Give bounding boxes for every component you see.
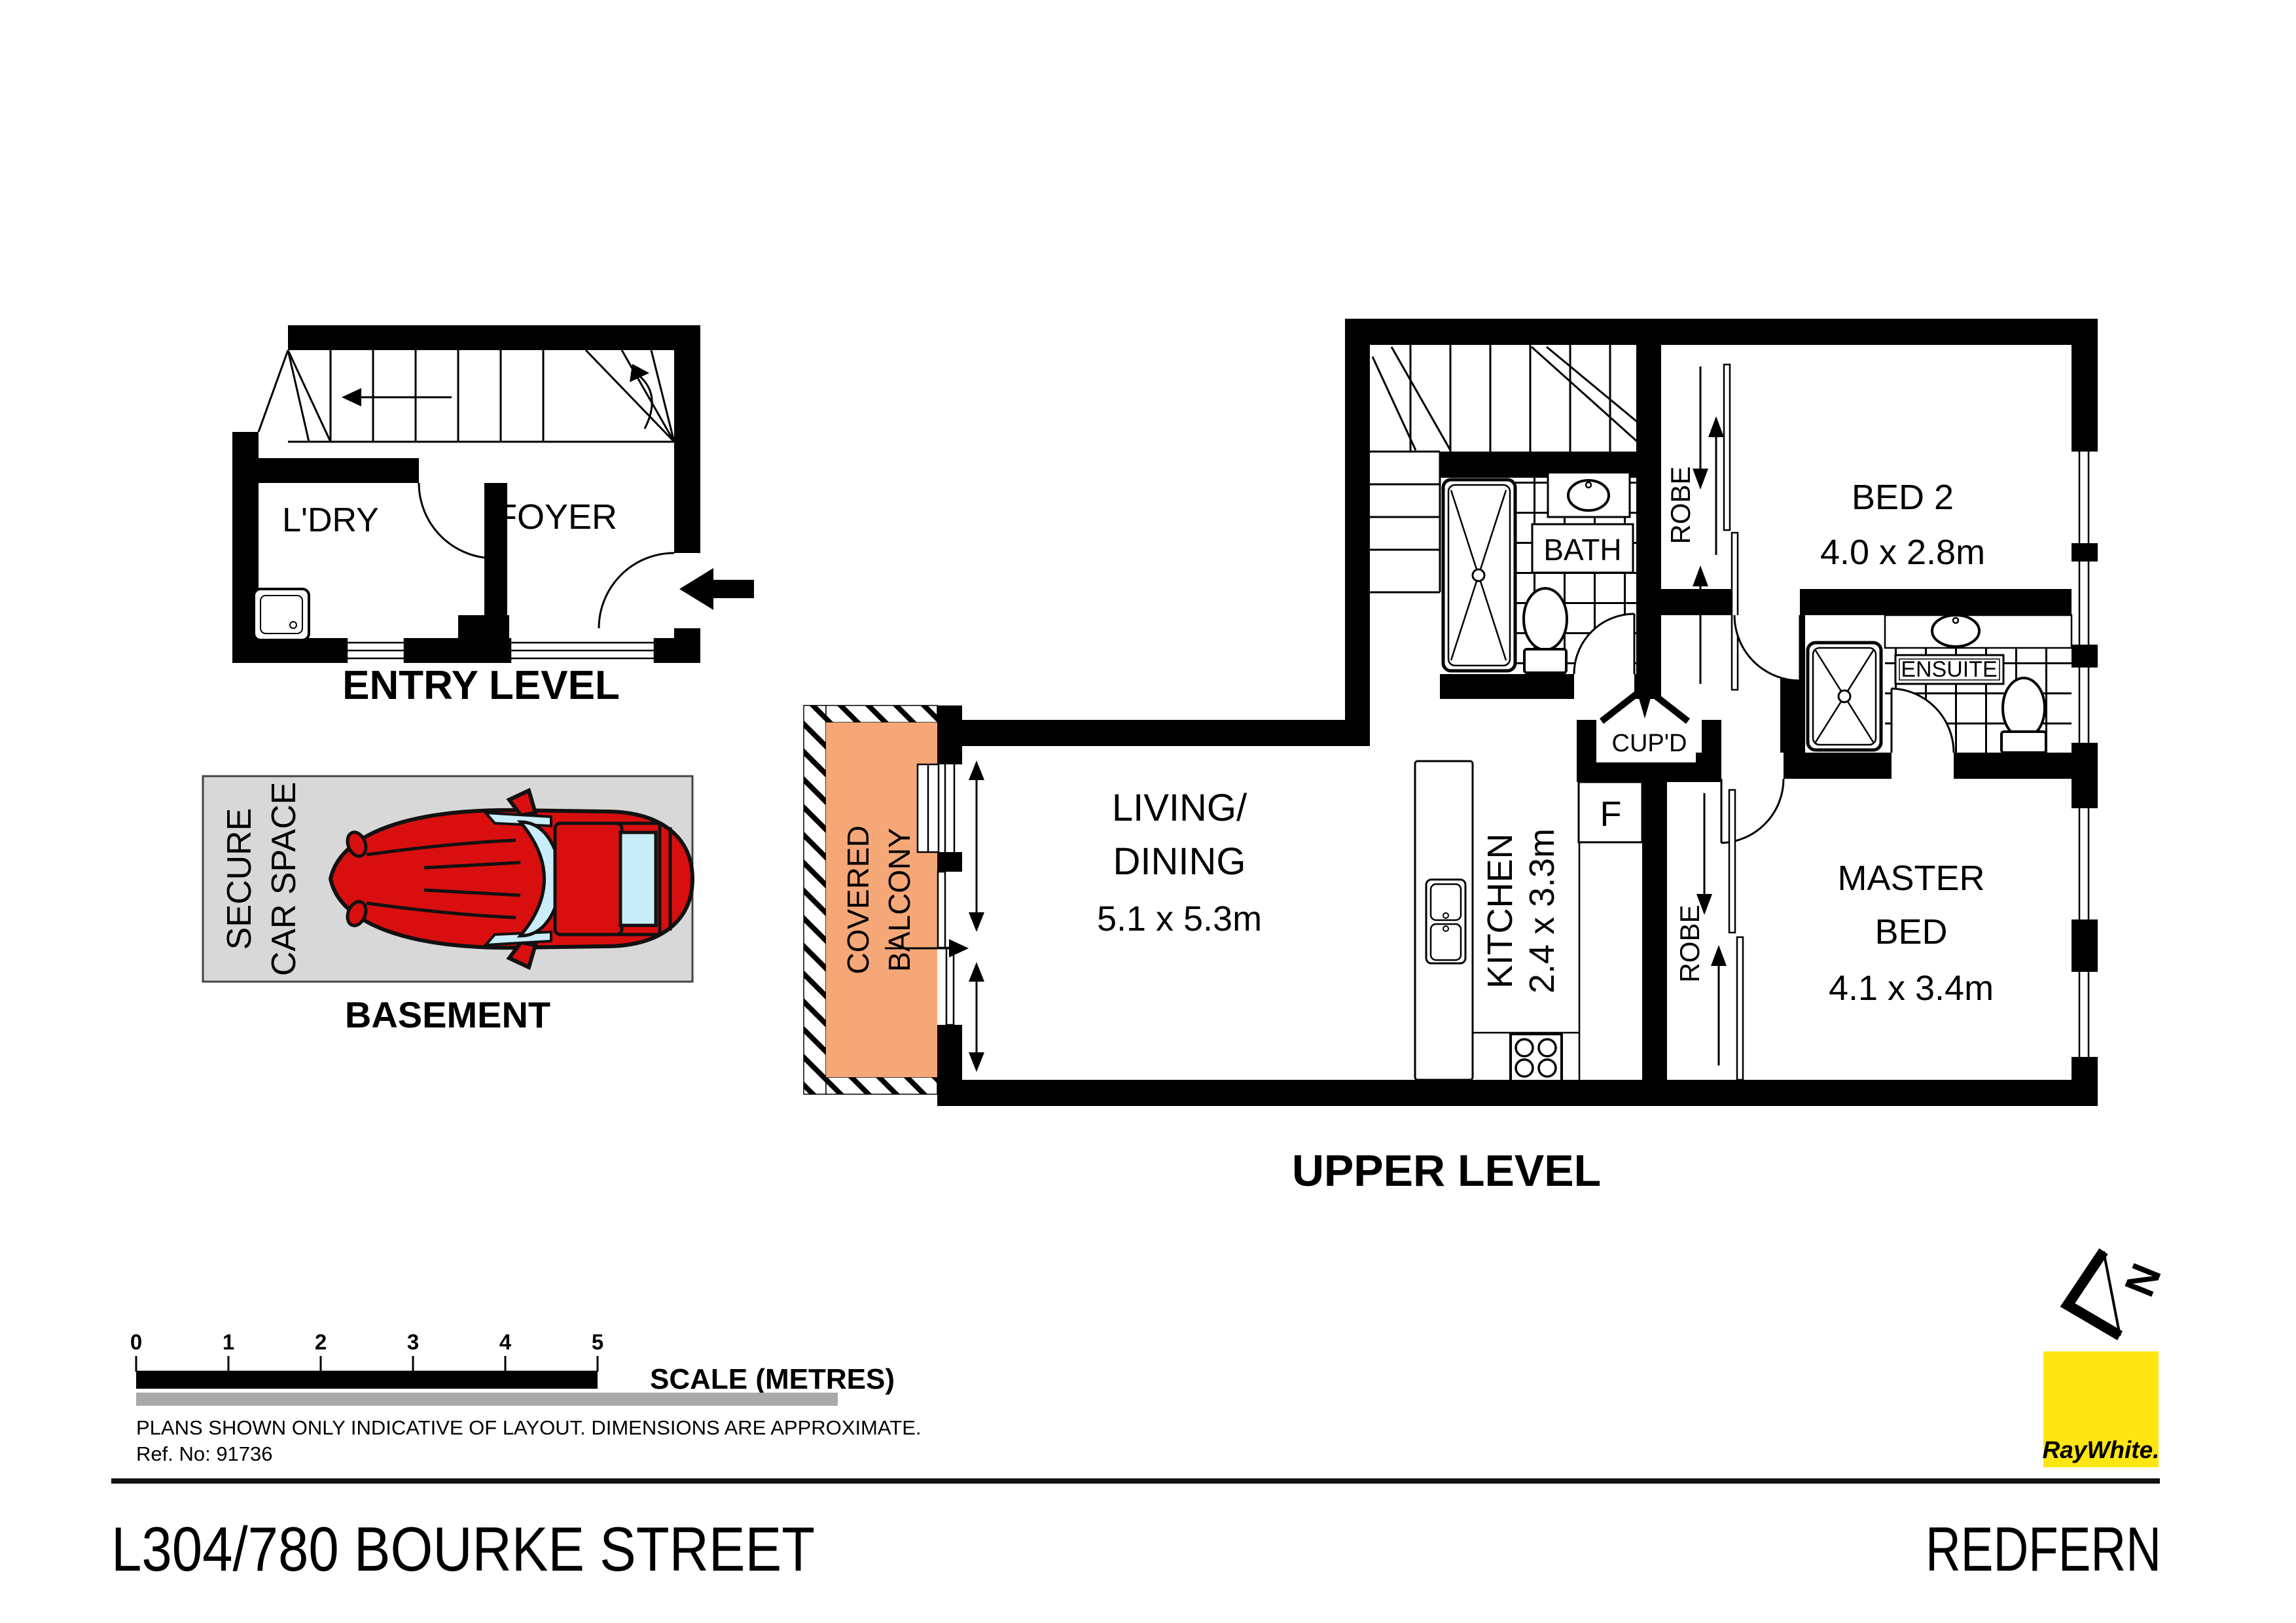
laundry-label: L'DRY — [282, 501, 379, 539]
balcony-hatch-left — [804, 705, 826, 1094]
balcony-hatch-bottom — [826, 1077, 937, 1094]
scale-tick-3: 3 — [407, 1330, 419, 1354]
scale-tick-0: 0 — [130, 1330, 142, 1354]
master-robe-label: ROBE — [1674, 904, 1705, 982]
living-window — [918, 764, 962, 852]
kitchen-dims: 2.4 x 3.3m — [1522, 829, 1562, 993]
living-label-line1: LIVING/ — [1112, 787, 1247, 829]
upper-level-plan: COVERED BALCONY — [804, 319, 2098, 1196]
master-window-1 — [2072, 808, 2098, 919]
bath-shower — [1443, 480, 1515, 671]
ensuite-label: ENSUITE — [1901, 657, 1997, 682]
master-dims: 4.1 x 3.4m — [1829, 969, 1994, 1008]
basement-caption: BASEMENT — [345, 994, 550, 1035]
branding: N RayWhite. — [2043, 1251, 2170, 1467]
master-robe: ROBE — [1674, 790, 1743, 1080]
ensuite-room: ENSUITE — [1808, 615, 2072, 753]
car-space-label-line2: CAR SPACE — [265, 782, 303, 976]
bed2-robe: ROBE — [1665, 365, 1738, 690]
basement-plan: SECURE CAR SPACE BASEMENT — [203, 776, 692, 1035]
kitchen-cooktop — [1511, 1034, 1562, 1081]
ensuite-shower — [1808, 643, 1881, 750]
scale-ticks — [136, 1356, 598, 1372]
bath-toilet — [1524, 588, 1567, 673]
fridge-label: F — [1600, 794, 1622, 834]
master-label-line2: BED — [1874, 912, 1947, 952]
floorplan-page: L'DRY FOYER ENTRY LEVEL SECURE CAR SPACE… — [0, 0, 2296, 1623]
footer-divider — [111, 1478, 2160, 1484]
bath-label: BATH — [1543, 533, 1621, 567]
scale-tick-4: 4 — [499, 1330, 512, 1354]
cupboard-bifold-door — [1602, 691, 1688, 721]
balcony-label-line1: COVERED — [841, 825, 875, 974]
kitchen-sink — [1426, 880, 1465, 963]
entry-level-plan: L'DRY FOYER ENTRY LEVEL — [232, 325, 754, 708]
bed2-window-1 — [2072, 452, 2098, 543]
laundry-door — [419, 483, 494, 558]
cupboard-label: CUP'D — [1612, 730, 1687, 757]
bath-sink — [1548, 473, 1630, 517]
bed2-door — [1734, 615, 1800, 681]
ensuite-toilet — [2001, 678, 2046, 753]
north-arrow-icon: N — [2068, 1251, 2170, 1336]
cupboard: CUP'D — [1602, 691, 1688, 757]
north-letter: N — [2115, 1257, 2170, 1303]
disclaimer-line2: Ref. No: 91736 — [136, 1442, 273, 1465]
floorplan-drawing: L'DRY FOYER ENTRY LEVEL SECURE CAR SPACE… — [0, 0, 2296, 1623]
bed2-label: BED 2 — [1852, 478, 1954, 517]
scale-tick-2: 2 — [315, 1330, 327, 1354]
entry-door — [599, 553, 674, 628]
living-label-line2: DINING — [1113, 840, 1246, 883]
bathroom: BATH — [1443, 473, 1636, 674]
car-space-label-line1: SECURE — [221, 808, 259, 950]
scale-bar-gray — [136, 1393, 838, 1406]
stair-direction-arrowhead — [342, 388, 361, 406]
master-window-2 — [2072, 972, 2098, 1057]
fridge: F — [1579, 782, 1642, 842]
kitchen-label: KITCHEN — [1480, 833, 1520, 988]
scale-bar: 0 1 2 3 4 5 SCALE (METRES) — [130, 1330, 895, 1406]
scale-bar-black — [136, 1372, 598, 1389]
entry-stairs — [259, 350, 674, 442]
laundry-tub — [254, 589, 309, 640]
raywhite-logo-text: RayWhite. — [2043, 1436, 2160, 1463]
suburb-label: REDFERN — [1926, 1514, 2161, 1584]
ensuite-sink — [1885, 615, 2072, 648]
footer: PLANS SHOWN ONLY INDICATIVE OF LAYOUT. D… — [111, 1416, 2161, 1584]
ensuite-window — [2072, 668, 2098, 743]
upper-level-caption: UPPER LEVEL — [1292, 1146, 1601, 1196]
foyer-label: FOYER — [495, 497, 617, 537]
car-rear-window — [620, 832, 656, 925]
address-label: L304/780 BOURKE STREET — [111, 1514, 815, 1584]
balcony-label-line2: BALCONY — [882, 828, 916, 972]
balcony-hatch-top — [826, 705, 937, 722]
scale-tick-1: 1 — [223, 1330, 234, 1354]
living-dims: 5.1 x 5.3m — [1097, 899, 1262, 938]
entry-arrow-icon — [679, 568, 754, 610]
master-label-line1: MASTER — [1837, 859, 1984, 898]
scale-tick-5: 5 — [592, 1330, 603, 1354]
disclaimer-line1: PLANS SHOWN ONLY INDICATIVE OF LAYOUT. D… — [136, 1416, 921, 1439]
bed2-dims: 4.0 x 2.8m — [1820, 533, 1985, 572]
bed2-robe-label: ROBE — [1665, 466, 1696, 544]
entry-level-caption: ENTRY LEVEL — [342, 663, 620, 708]
car-roof — [555, 823, 622, 935]
scale-bar-label: SCALE (METRES) — [650, 1363, 895, 1395]
raywhite-logo: RayWhite. — [2043, 1351, 2160, 1467]
bed2-window-2 — [2072, 562, 2098, 645]
